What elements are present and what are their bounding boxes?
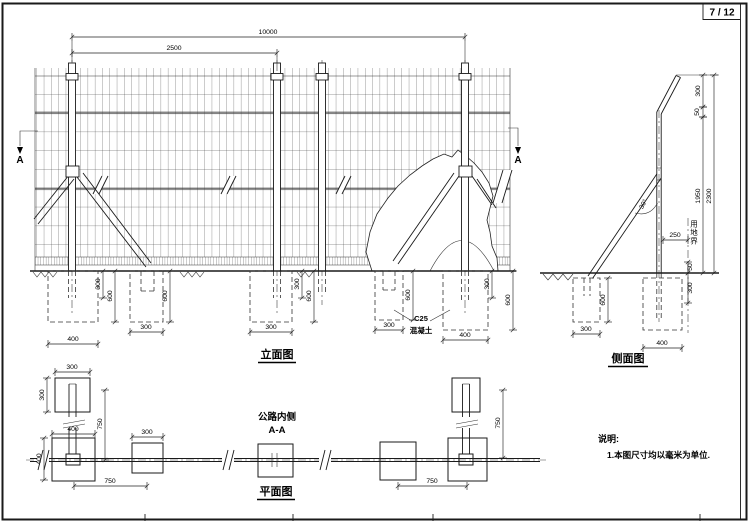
concrete-callout: C25 混凝土 <box>394 310 450 335</box>
plan-title: 平面图 <box>257 485 295 500</box>
side-post <box>657 76 681 323</box>
dim-label: 600 <box>405 289 412 301</box>
break-symbol <box>319 450 331 472</box>
dim-label: 750 <box>97 418 104 430</box>
dim-label: 250 <box>669 232 681 239</box>
dim-label: 2500 <box>166 45 181 52</box>
dimension: 750 <box>72 478 149 490</box>
dimension: 300 <box>695 73 707 109</box>
dim-label: 600 <box>107 290 114 302</box>
page-number-box: 7 / 12 <box>703 4 741 20</box>
land-boundary: 用地界 <box>688 218 699 333</box>
view-title: 立面图 <box>261 347 294 361</box>
dimension: 400 <box>641 340 684 352</box>
break-symbol <box>455 417 479 428</box>
elevation-title: 立面图 <box>258 347 296 363</box>
section-marker-label: A <box>16 155 23 166</box>
dimension: 300 <box>39 376 51 414</box>
dimension: 2500 <box>70 45 279 57</box>
dim-label: 750 <box>104 478 116 485</box>
road-side-label: 公路内侧 <box>258 411 296 423</box>
foundation-plan <box>132 443 163 473</box>
plan-post-assembly <box>448 378 487 481</box>
dimension: 300 <box>248 324 294 336</box>
dim-label: 300 <box>265 324 277 331</box>
dim-label: 300 <box>580 326 592 333</box>
dim-label: 400 <box>67 336 79 343</box>
post-cap <box>271 74 283 81</box>
dim-label: 400 <box>656 340 668 347</box>
dim-label: 10000 <box>259 29 278 36</box>
notes-line: 1.本图尺寸均以毫米为单位. <box>607 450 710 460</box>
dim-label: 300 <box>383 322 395 329</box>
foundation <box>48 271 98 322</box>
drawing-sheet: 7 / 12 <box>0 0 750 523</box>
dimension: 600 <box>162 269 174 324</box>
concrete-grade-label: C25 <box>414 314 428 323</box>
concrete-material-label: 混凝土 <box>410 325 433 335</box>
dimension: 300 <box>53 364 92 376</box>
post-section <box>66 454 80 465</box>
foundation <box>643 278 682 330</box>
foundation-plan <box>52 438 95 481</box>
section-label: A-A <box>269 425 286 436</box>
dim-label: 300 <box>484 278 491 290</box>
dimension: 300 <box>294 269 306 300</box>
foundation-plan <box>258 444 293 477</box>
dimension: 300 <box>484 269 496 300</box>
dim-label: 2300 <box>706 188 713 203</box>
side-brace: 30° <box>584 174 661 296</box>
dimension: 10000 <box>70 29 467 41</box>
dim-label: 300 <box>294 278 301 290</box>
dimension: 300 <box>128 324 165 336</box>
post-cap <box>459 74 471 81</box>
post-cap <box>316 74 328 81</box>
ground-hatch <box>543 274 573 280</box>
ground-hatch <box>33 272 57 277</box>
dimension: 750 <box>97 388 109 462</box>
side-ground <box>540 273 719 280</box>
dim-label: 400 <box>67 426 79 433</box>
extension-lines <box>72 41 465 71</box>
brace-connector <box>459 166 472 177</box>
dimension: 300 <box>571 326 602 338</box>
brace-connector <box>66 166 79 177</box>
dimension: 750 <box>495 388 507 460</box>
page-number: 7 / 12 <box>709 8 734 19</box>
ground-hatch <box>180 272 204 277</box>
dim-label: 300 <box>695 85 702 97</box>
dim-label: 400 <box>459 332 471 339</box>
dim-label: 50 <box>687 263 694 271</box>
break-symbol <box>222 450 234 472</box>
dim-label: 300 <box>39 389 46 401</box>
dim-label: 300 <box>687 282 694 294</box>
dimension: 600 <box>505 269 517 332</box>
view-title: 侧面图 <box>612 351 645 365</box>
dim-label: 300 <box>141 429 153 436</box>
side-view: 30° 用地界 侧面图 <box>540 75 719 367</box>
anchor-pad-plan <box>55 378 90 412</box>
foundation-plan <box>380 442 416 480</box>
foundation-plan <box>448 438 487 481</box>
dim-label: 750 <box>426 478 438 485</box>
side-title: 侧面图 <box>608 351 648 367</box>
dimension: 400 <box>50 426 97 438</box>
dimension: 300 <box>95 269 107 300</box>
dimension: 400 <box>46 336 100 348</box>
post-cap <box>66 74 78 81</box>
dim-label: 300 <box>95 278 102 290</box>
dim-label: 600 <box>306 290 313 302</box>
view-title: 平面图 <box>260 485 293 498</box>
foundation <box>573 278 600 322</box>
plan-middle-foundation <box>258 444 293 477</box>
anchor-pad-plan <box>452 378 480 412</box>
dimension: 300 <box>130 429 165 441</box>
dimension: 600 <box>600 276 612 324</box>
dim-label: 50 <box>694 108 701 116</box>
dim-label: 750 <box>495 417 502 429</box>
foundation <box>443 271 488 330</box>
dimension: 400 <box>441 332 490 344</box>
dim-label: 400 <box>36 453 43 465</box>
dim-label: 600 <box>162 290 169 302</box>
notes-heading: 说明: <box>598 433 619 444</box>
dim-label: 300 <box>66 364 78 371</box>
land-boundary-label: 用地界 <box>689 220 698 246</box>
foundation <box>130 271 163 322</box>
post-section <box>459 454 473 465</box>
notes-block: 说明: 1.本图尺寸均以毫米为单位. <box>598 433 710 460</box>
dim-label: 300 <box>140 324 152 331</box>
dim-label: 1950 <box>695 188 702 203</box>
dimension: 600 <box>306 269 318 324</box>
dimension: 2300 <box>706 73 718 275</box>
ground-hatch <box>297 272 313 277</box>
dim-label: 600 <box>600 294 607 306</box>
dimension: 600 <box>107 269 119 324</box>
dimension: 250 <box>661 232 690 244</box>
dimension: 300 <box>373 322 405 334</box>
dimension: 300 <box>684 271 694 305</box>
section-marker-label: A <box>514 155 521 166</box>
elevation-view: C25 混凝土 A A 立面图 <box>16 41 521 363</box>
dim-label: 600 <box>505 294 512 306</box>
foundation <box>250 271 292 322</box>
drawing-canvas: 7 / 12 <box>0 0 750 523</box>
